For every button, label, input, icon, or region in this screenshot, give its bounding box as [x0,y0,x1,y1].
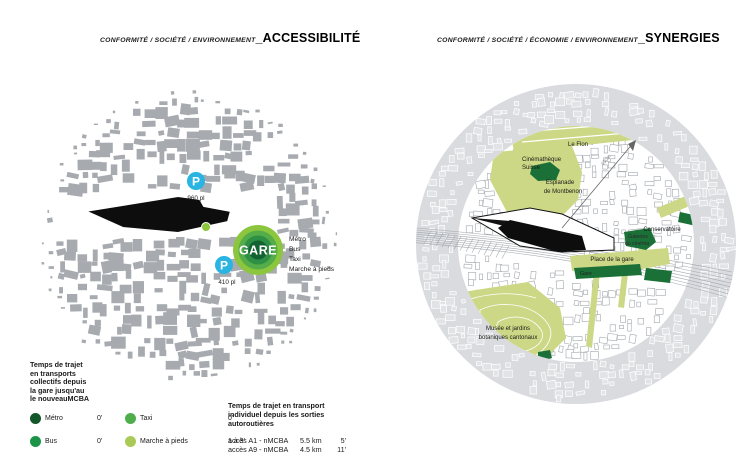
label-musee-2: botaniques cantonaux [479,335,538,341]
travel-row-label: accès A1 - nMCBA [228,436,298,445]
label-galeries-2: du cinéma [625,241,649,247]
travel-row-distance: 5.5 km [300,436,332,445]
car-travel-info: Temps de trajet en transport individuel … [228,401,346,454]
label-esplanade-2: de Montbenon [544,189,582,195]
parking-capacity: 410 pl [218,279,235,286]
mcba-site-footprint [85,196,231,233]
synergies-map: 400m Le Flon Cinémathèque Suisse Esplana… [410,80,736,410]
legend-label-walk: Marche à pieds [140,438,228,445]
travel-title-line: Temps de trajet en transport [228,401,346,410]
travel-row-a1: accès A1 - nMCBA 5.5 km 5' [228,436,346,445]
mode-taxi: Taxi [289,256,301,263]
synergies-title-main: _SYNERGIES [638,31,720,45]
bus-dot-icon [30,436,41,447]
travel-title-line: autoroutières [228,419,346,428]
label-esplanade-1: Esplanade [546,180,575,186]
parking-symbol: P [192,175,200,189]
mode-walk: Marche à pieds [289,266,335,273]
metro-dot-icon [30,413,41,424]
legend-label-taxi: Taxi [140,415,228,422]
accessibility-map: P 960 pl P 410 pl GARE Métro Bus Taxi Ma… [28,78,348,400]
travel-title-line: individuel depuis les sorties [228,410,346,419]
legend-label-bus: Bus [45,438,97,445]
gare-marker: GARE [233,225,283,275]
parking-capacity: 960 pl [187,195,204,202]
label-musee-1: Musée et jardins [486,326,530,332]
label-cinematheque-1: Cinémathèque [522,157,562,163]
legend-label-metro: Métro [45,415,97,422]
slide-page: CONFORMITÉ / SOCIÉTÉ / ENVIRONNEMENT_ACC… [0,0,736,460]
synergies-title: CONFORMITÉ / SOCIÉTÉ / ÉCONOMIE / ENVIRO… [437,31,720,45]
travel-row-time: 11' [334,445,346,454]
travel-rows: accès A1 - nMCBA 5.5 km 5' accès A9 - nM… [228,436,346,454]
mode-metro: Métro [289,236,306,243]
parking-symbol: P [220,259,228,273]
label-gare: Gare [580,271,592,277]
label-place-gare: Place de la gare [590,257,634,263]
legend-value-metro: 0' [97,415,125,422]
accessibility-title: CONFORMITÉ / SOCIÉTÉ / ENVIRONNEMENT_ACC… [100,31,360,45]
travel-row-a9: accès A9 - nMCBA 4.5 km 11' [228,445,346,454]
legend-value-bus: 0' [97,438,125,445]
label-conservatoire: Conservatoire [643,227,681,233]
parking-marker-top: P 960 pl [187,172,205,202]
accessibility-title-prefix: CONFORMITÉ / SOCIÉTÉ / ENVIRONNEMENT [100,37,256,44]
mode-bus: Bus [289,246,301,253]
mcba-entrance-dot [202,223,211,232]
legend-title: Temps de trajet en transports collectifs… [30,361,264,404]
taxi-dot-icon [125,413,136,424]
label-le-flon: Le Flon [568,142,588,148]
travel-row-time: 5' [334,436,346,445]
walk-dot-icon [125,436,136,447]
gare-label: GARE [239,244,277,258]
synergies-title-prefix: CONFORMITÉ / SOCIÉTÉ / ÉCONOMIE / ENVIRO… [437,37,638,44]
travel-row-distance: 4.5 km [300,445,332,454]
label-cinematheque-2: Suisse [522,165,541,171]
accessibility-title-main: _ACCESSIBILITÉ [256,31,361,45]
label-galeries-1: Galeries [628,234,648,240]
travel-row-label: accès A9 - nMCBA [228,445,298,454]
